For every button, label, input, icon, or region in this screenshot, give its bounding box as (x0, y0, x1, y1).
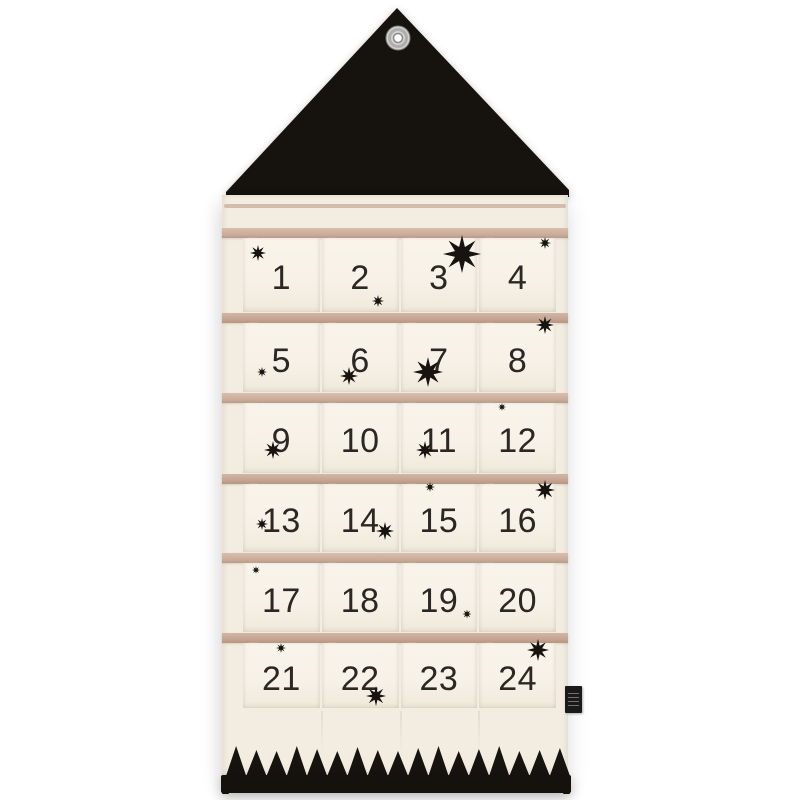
hanging-bar (221, 775, 571, 793)
fabric-crease (400, 711, 402, 755)
pocket-number: 8 (508, 344, 527, 378)
pocket-number: 1 (272, 261, 291, 295)
roof-panel (226, 8, 569, 197)
pocket-19: 19 (401, 563, 478, 632)
pocket-22: 22 (322, 643, 399, 708)
fabric-crease (478, 711, 480, 755)
pocket-23: 23 (401, 643, 478, 708)
row-trim (222, 553, 568, 563)
pocket-number: 22 (341, 662, 380, 696)
pocket-11: 11 (401, 403, 478, 473)
pocket-9: 9 (243, 403, 320, 473)
pocket-number: 3 (429, 261, 448, 295)
row-trim (222, 393, 568, 403)
row-trim (222, 633, 568, 643)
pocket-number: 7 (429, 344, 448, 378)
pocket-number: 20 (498, 584, 537, 618)
pocket-number: 10 (341, 424, 380, 458)
pocket-number: 23 (419, 662, 458, 696)
pocket-number: 2 (350, 261, 369, 295)
pocket-13: 13 (243, 484, 320, 552)
grommet-eyelet (386, 26, 410, 50)
brand-tag (565, 686, 582, 713)
pocket-2: 2 (322, 238, 399, 312)
pocket-number: 19 (419, 584, 458, 618)
grommet-ring (390, 30, 407, 47)
pocket-1: 1 (243, 238, 320, 312)
pocket-24: 24 (479, 643, 556, 708)
pocket-14: 14 (322, 484, 399, 552)
pocket-number: 6 (350, 344, 369, 378)
pocket-6: 6 (322, 323, 399, 392)
bar-end-left (222, 786, 229, 794)
fabric-crease (321, 711, 323, 755)
bar-end-right (563, 786, 570, 794)
pocket-15: 15 (401, 484, 478, 552)
row-trim (222, 313, 568, 323)
pocket-7: 7 (401, 323, 478, 392)
pocket-number: 4 (508, 261, 527, 295)
pocket-number: 18 (341, 584, 380, 618)
pocket-12: 12 (479, 403, 556, 473)
pocket-number: 21 (262, 662, 301, 696)
row-trim (222, 228, 568, 238)
pocket-number: 13 (262, 504, 301, 538)
calendar-body: 123456789101112131415161718192021222324 (222, 195, 568, 775)
pocket-10: 10 (322, 403, 399, 473)
pocket-21: 21 (243, 643, 320, 708)
pocket-17: 17 (243, 563, 320, 632)
pocket-20: 20 (479, 563, 556, 632)
pocket-number: 14 (341, 504, 380, 538)
top-seam (224, 204, 566, 208)
pocket-number: 12 (498, 424, 537, 458)
pocket-8: 8 (479, 323, 556, 392)
pocket-3: 3 (401, 238, 478, 312)
pocket-4: 4 (479, 238, 556, 312)
pocket-18: 18 (322, 563, 399, 632)
pocket-5: 5 (243, 323, 320, 392)
row-trim (222, 474, 568, 484)
pocket-number: 17 (262, 584, 301, 618)
pocket-16: 16 (479, 484, 556, 552)
pocket-number: 9 (272, 424, 291, 458)
pocket-number: 16 (498, 504, 537, 538)
pocket-number: 24 (498, 662, 537, 696)
grommet-hole (394, 34, 403, 43)
pocket-number: 15 (419, 504, 458, 538)
product-photo: 123456789101112131415161718192021222324 (0, 0, 800, 800)
pocket-number: 5 (272, 344, 291, 378)
pocket-number: 11 (421, 424, 457, 458)
